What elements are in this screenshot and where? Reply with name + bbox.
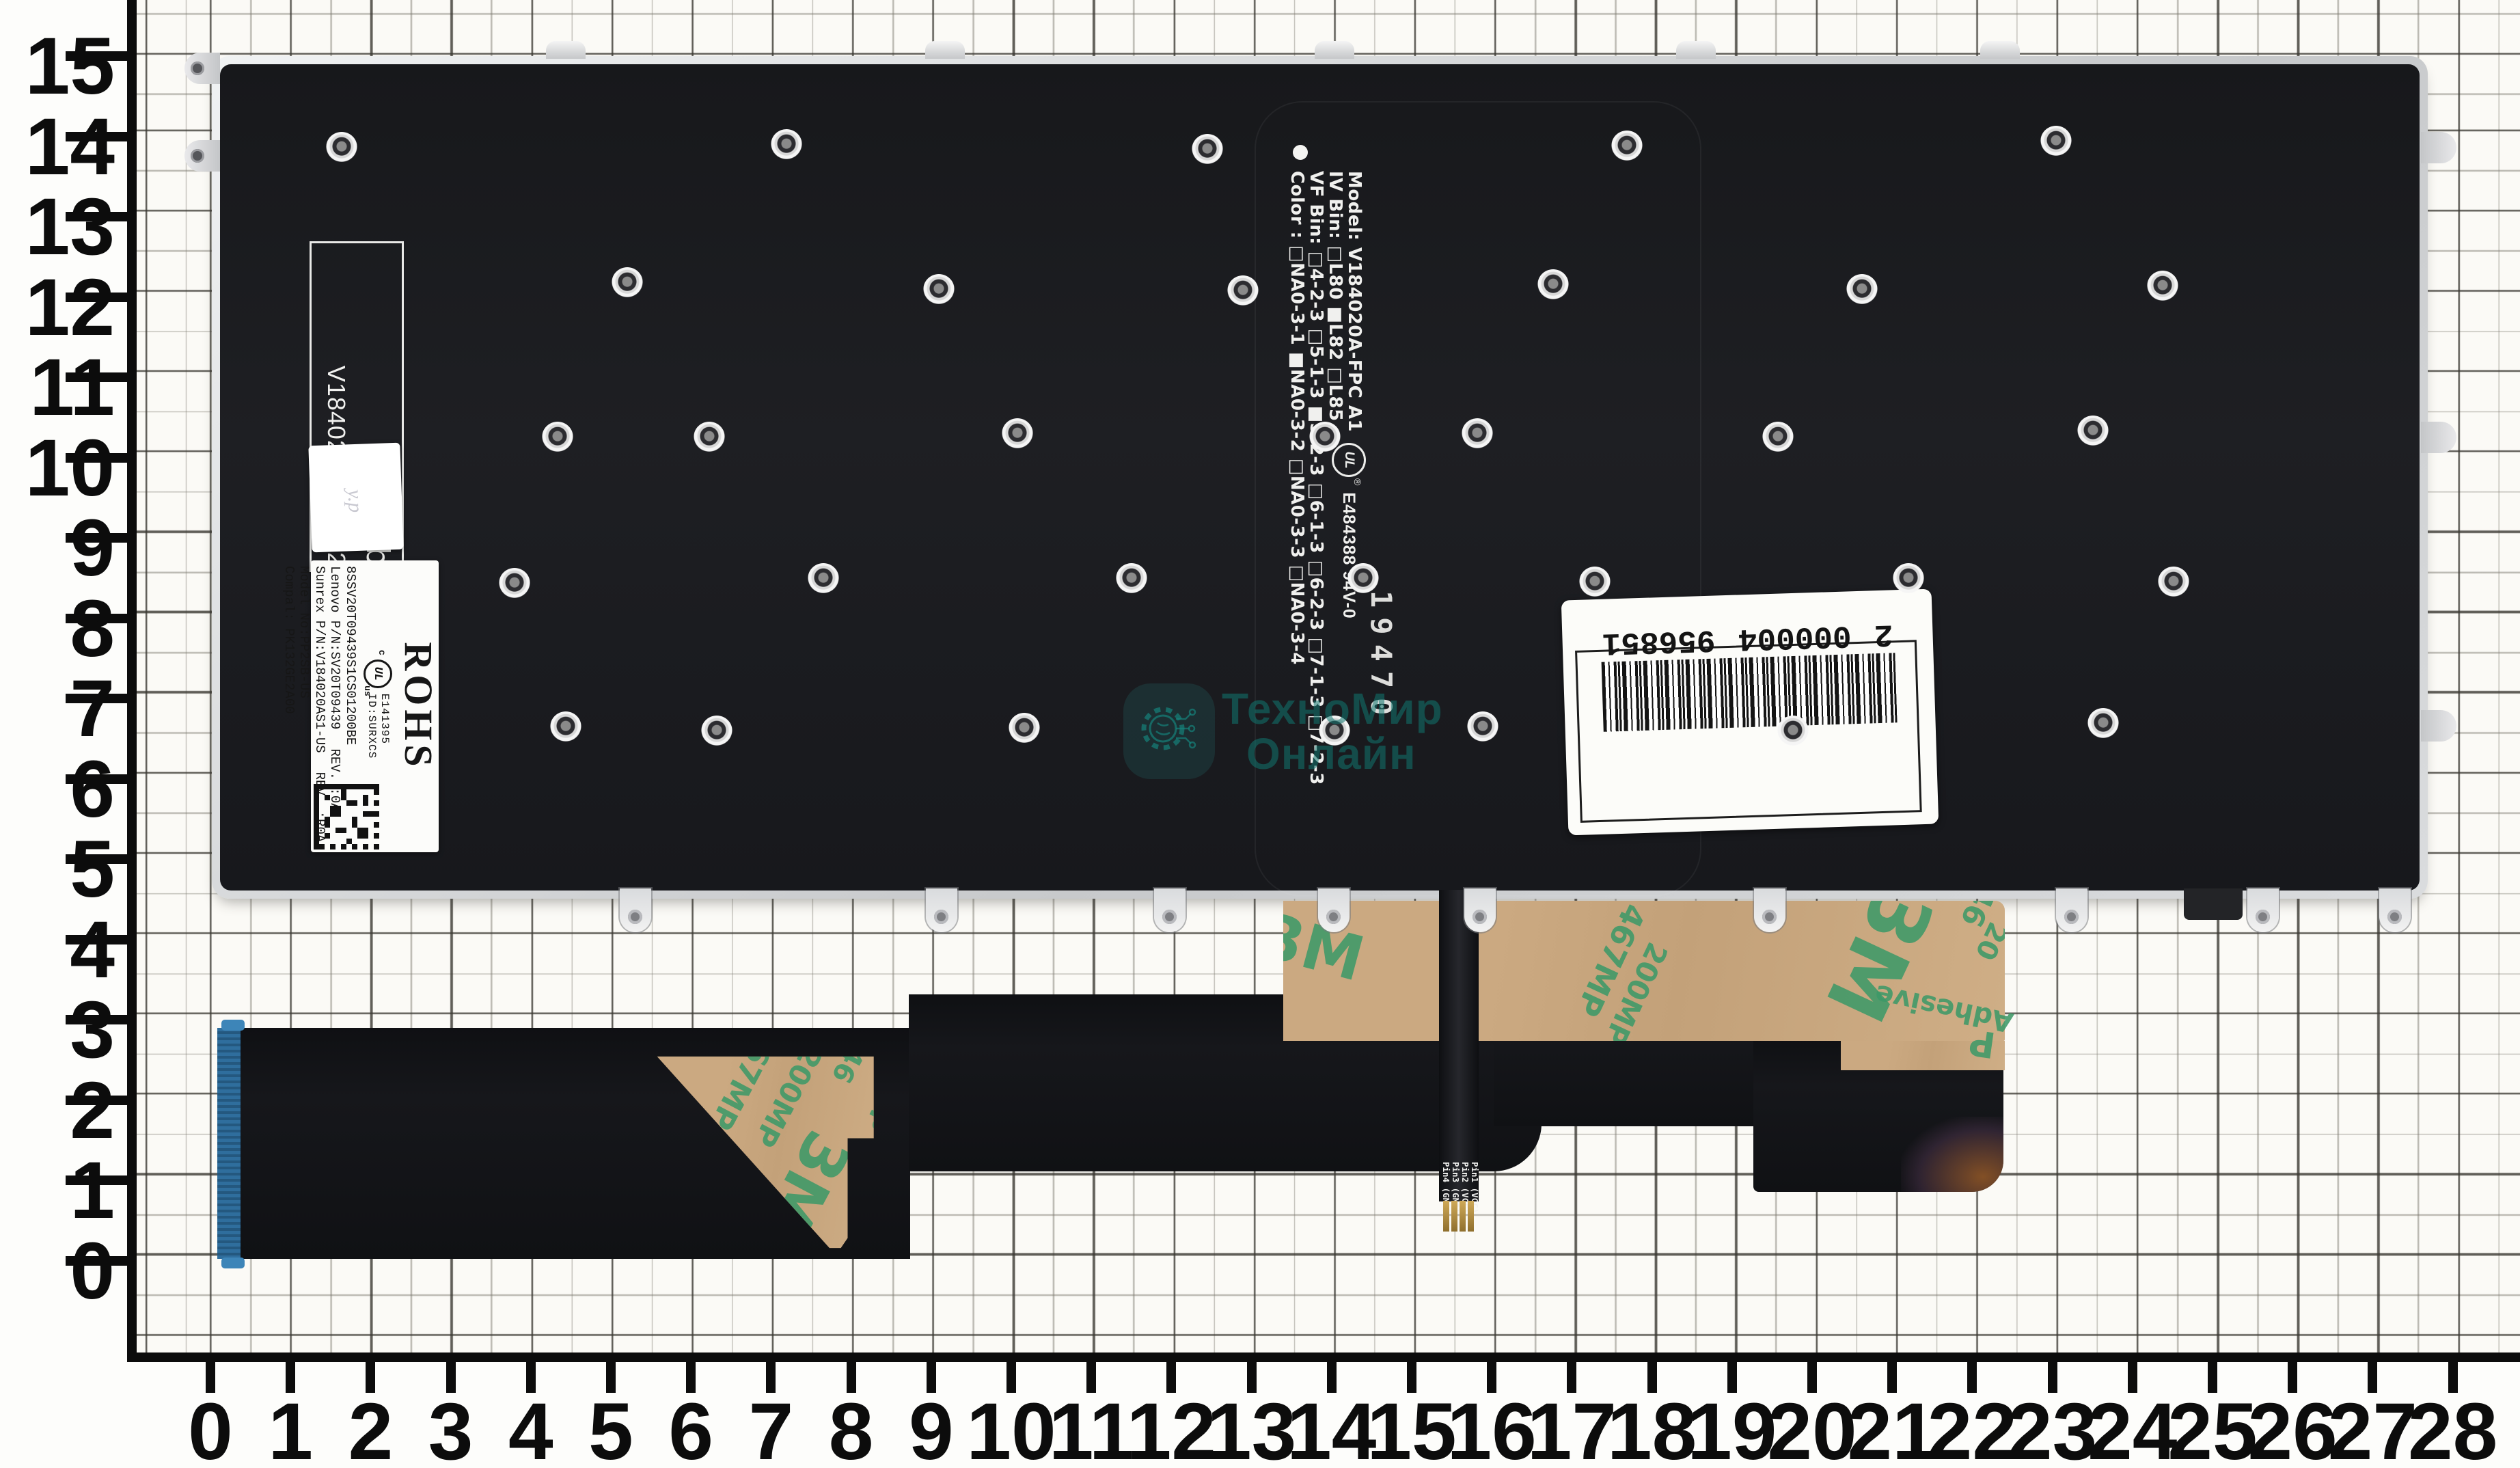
label-model-no: Model No:PP2SB-US — [297, 560, 312, 852]
screw-grommet — [1002, 418, 1033, 450]
plate-bottom-lug — [2379, 888, 2411, 932]
plate-bottom-lug — [2056, 888, 2087, 932]
screw-grommet — [1192, 134, 1223, 165]
barcode-bars-icon — [1602, 653, 1898, 731]
tape-print: 46 — [825, 1052, 871, 1088]
plate-top-lug — [546, 41, 586, 59]
screw-grommet — [694, 422, 725, 453]
watermark-line1: ТехноМир — [1222, 683, 1443, 734]
plate-dark-tab — [2184, 888, 2243, 920]
plate-top-lug — [1676, 41, 1716, 59]
bottom-ruler-bar — [127, 1353, 2520, 1362]
screw-grommet — [326, 132, 357, 163]
gold-contact-finger — [1460, 1201, 1466, 1232]
bottom-ruler-label: 28 — [2385, 1391, 2520, 1468]
screw-grommet — [1893, 563, 1924, 595]
plate-right-lug — [2421, 132, 2456, 163]
screw-grommet — [2040, 126, 2072, 157]
screw-grommet — [2147, 271, 2178, 302]
rohs-spec-label: ROHS c UL us E141395 ID:SURXCS 8SSV20T09… — [311, 560, 439, 852]
left-ruler-label: 8 — [12, 588, 115, 669]
ul-logo-icon: UL — [1332, 443, 1366, 477]
connector-stiffener-blue — [217, 1028, 241, 1259]
left-ruler-label: 15 — [12, 26, 115, 107]
blue-tab-top — [221, 1020, 245, 1031]
cert-id: ID:SURXCS — [365, 694, 378, 759]
screw-grommet — [550, 711, 581, 743]
ul-file-number: E484388 94V-0 — [1339, 492, 1359, 619]
datamatrix-code-icon — [314, 784, 379, 849]
cable-pin-label: Pin3 (GND) — [1451, 1162, 1461, 1200]
left-ruler-label: 0 — [12, 1231, 115, 1311]
left-ruler-label: 2 — [12, 1070, 115, 1151]
gear-globe-circuit-icon — [1123, 683, 1215, 779]
plate-bottom-lug — [620, 888, 651, 932]
left-ruler-label: 11 — [12, 347, 115, 428]
plate-right-lug — [2421, 710, 2456, 742]
left-ruler-label: 9 — [12, 508, 115, 588]
watermark-logo-badge — [1123, 683, 1215, 779]
screw-grommet — [1116, 563, 1147, 595]
cable-pin-label: Pin2 (VCC) — [1460, 1162, 1470, 1200]
left-ruler-label: 13 — [12, 187, 115, 267]
left-ruler-label: 6 — [12, 749, 115, 830]
screw-grommet — [1462, 418, 1493, 450]
screw-grommet — [1611, 131, 1643, 162]
handwriting: у.р — [309, 448, 401, 554]
label-compal: Compal: PK132GE2A00 — [282, 560, 297, 852]
screw-grommet — [1347, 563, 1379, 595]
rohs-label-content: ROHS c UL us E141395 ID:SURXCS 8SSV20T09… — [311, 560, 439, 852]
adhesive-tape-band: 3M 46 20 467MP 200MP 3M — [1283, 901, 2005, 1041]
backlight-cable — [1439, 890, 1479, 1201]
handwritten-sticker: у.р — [308, 443, 403, 553]
screw-grommet — [1762, 422, 1794, 453]
gold-contact-finger — [1451, 1201, 1457, 1232]
screw-grommet — [1537, 269, 1569, 301]
gold-contact-finger — [1468, 1201, 1474, 1232]
rohs-text: ROHS — [398, 560, 439, 852]
cul-c: c — [376, 650, 387, 655]
cul-us: us — [362, 685, 372, 696]
print-color-line: Color : □NA0-3-1 ■NA0-3-2 □NA0-3-3 □NA0-… — [1287, 171, 1306, 718]
screw-grommet — [1777, 716, 1809, 747]
left-ruler-label: 1 — [12, 1150, 115, 1231]
cert-number: E141395 — [378, 694, 391, 759]
plate-left-lug — [184, 140, 220, 172]
left-ruler-label: 4 — [12, 910, 115, 990]
screw-grommet — [1309, 422, 1341, 453]
product-photo: 1514131211109876543210 01234567891011121… — [0, 0, 2520, 1468]
screw-grommet — [542, 422, 573, 453]
left-ruler-label: 10 — [12, 428, 115, 508]
plate-bottom-lug — [1318, 888, 1350, 932]
registered-symbol: ® — [1352, 478, 1363, 485]
cul-us-logo-icon: c UL us — [362, 654, 394, 685]
plate-top-lug — [1980, 41, 2020, 59]
cable-pin-label: Pin4 (GND) — [1441, 1162, 1451, 1200]
left-ruler-label: 12 — [12, 267, 115, 348]
ul-mark-group: UL ® E484388 94V-0 — [1331, 443, 1367, 648]
screw-grommet — [808, 563, 839, 595]
left-ruler-label: 5 — [12, 829, 115, 910]
screw-grommet — [2077, 416, 2109, 447]
cul-ul: UL — [364, 660, 392, 688]
cable-pin-label: Pin1 (VCC) — [1470, 1162, 1480, 1200]
blue-tab-bottom — [221, 1258, 245, 1268]
screw-grommet — [1579, 567, 1611, 598]
screw-grommet — [1467, 711, 1498, 743]
plate-top-lug — [925, 41, 965, 59]
left-ruler-label: 3 — [12, 990, 115, 1070]
plate-bottom-lug — [1754, 888, 1785, 932]
watermark-line2: Онлайн — [1246, 729, 1416, 779]
screw-grommet — [499, 568, 530, 599]
left-ruler-label: 7 — [12, 668, 115, 749]
screw-grommet — [1227, 275, 1259, 307]
screw-grommet — [2158, 567, 2189, 598]
screw-grommet — [2087, 708, 2119, 739]
plate-top-lug — [1315, 41, 1354, 59]
plate-bottom-lug — [1464, 888, 1496, 932]
screw-grommet — [771, 129, 802, 161]
left-ruler-label: 14 — [12, 107, 115, 187]
left-ruler-bar — [127, 0, 137, 1361]
screw-grommet — [1846, 274, 1878, 305]
plate-bottom-lug — [2247, 888, 2279, 932]
gold-contact-finger — [1443, 1201, 1449, 1232]
barcode-sticker: 2 000004 956851 — [1561, 589, 1939, 836]
plate-bottom-lug — [1154, 888, 1186, 932]
screw-grommet — [701, 716, 732, 747]
screw-grommet — [1009, 713, 1040, 744]
screw-grommet — [923, 274, 955, 305]
plate-bottom-lug — [926, 888, 957, 932]
screw-grommet — [612, 267, 643, 299]
plate-left-lug — [184, 53, 220, 84]
plate-right-lug — [2421, 422, 2456, 453]
led-window-dot — [1293, 145, 1308, 160]
